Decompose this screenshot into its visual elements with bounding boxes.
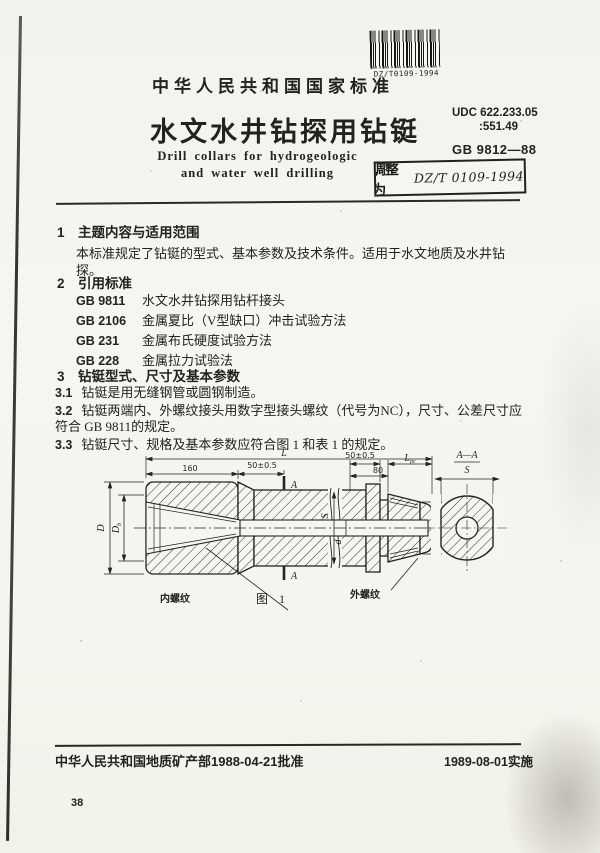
clause-number: 3.2 [55,404,72,418]
external-thread-leader [391,558,418,590]
section-view-AA: A—A S [425,450,509,572]
list-item: GB 231金属布氏硬度试验方法 [76,331,346,351]
approval-statement: 中华人民共和国地质矿产部1988-04-21批准 [55,751,304,770]
clause-text: 钻铤是用无缝钢管或圆钢制造。 [81,385,263,400]
scan-smudge [505,715,600,853]
standard-code: GB 9812—88 [452,142,537,157]
clause-text: 钻铤两端内、外螺纹接头用数字型接头螺纹（代号为NC），尺寸、公差尺寸应符合 GB… [55,403,522,435]
section-letter: A [290,571,298,582]
revision-stamp: 调整为 DZ/T 0109-1994 [374,158,527,196]
footer-divider [55,743,521,747]
clause-number: 3.1 [55,386,72,400]
header-divider [56,199,520,205]
list-item: GB 2106金属夏比（V型缺口）冲击试验方法 [76,311,346,331]
clause-3-1: 3.1钻铤是用无缝钢管或圆钢制造。 [55,385,529,402]
document-title-cn: 水文水井钻探用钻铤 [150,110,410,149]
section-3-heading: 3 钻铤型式、尺寸及基本参数 [57,365,240,385]
section-dim-S: S [465,465,470,476]
section-2-heading: 2 引用标准 [57,272,132,292]
external-thread-label: 外螺纹 [349,588,381,601]
figure-1-drawing: A A L 160 50±0.5 50±0.5 80 Lpc D Db [88,446,578,621]
referenced-standards-list: GB 9811水文水井钻探用钻杆接头 GB 2106金属夏比（V型缺口）冲击试验… [76,291,346,371]
udc-line2: :551.49 [452,120,538,134]
section-letter: A [290,480,298,491]
stamp-prefix: 调整为 [374,158,412,196]
document-title-en: Drill collars for hydrogeologic and wate… [125,148,390,182]
barcode-label: DZ/T0109-1994 [370,68,442,79]
ref-title: 金属布氏硬度试验方法 [142,333,272,348]
barcode-block: DZ/T0109-1994 [370,29,443,78]
ref-code: GB 2106 [76,312,142,331]
dim-label-80: 80 [373,466,383,475]
internal-thread-label: 内螺纹 [160,592,191,605]
implementation-date: 1989-08-01实施 [444,751,533,770]
scanned-standard-page: 中华人民共和国国家标准 水文水井钻探用钻铤 Drill collars for … [0,0,600,853]
dim-label-S: S [320,514,331,519]
stamp-number: DZ/T 0109-1994 [414,168,524,185]
dim-label-160: 160 [182,464,197,473]
figure-caption: 图 1 [256,592,289,606]
ref-code: GB 231 [76,332,142,351]
dim-label-Lpc: Lpc [403,453,416,465]
ref-code: GB 9811 [76,292,142,311]
ref-title: 水文水井钻探用钻杆接头 [142,293,285,308]
ref-title: 金属夏比（V型缺口）冲击试验方法 [142,313,346,328]
dim-label-Db: Db [111,523,123,534]
section-1-heading: 1 主题内容与适用范围 [57,221,200,241]
dim-label-D: D [96,524,107,533]
dim-label-50-right: 50±0.5 [345,451,375,460]
section-3-clauses: 3.1钻铤是用无缝钢管或圆钢制造。 3.2钻铤两端内、外螺纹接头用数字型接头螺纹… [55,385,529,454]
paper-speckles [0,0,2,2]
section-1-body: 本标准规定了钻铤的型式、基本参数及技术条件。适用于水文地质及水井钻探。 [76,245,526,279]
document-title-en-line2: and water well drilling [125,165,390,182]
clause-3-2: 3.2钻铤两端内、外螺纹接头用数字型接头螺纹（代号为NC），尺寸、公差尺寸应符合… [55,403,529,436]
national-standard-label: 中华人民共和国国家标准 [152,72,402,97]
binding-edge-line [6,16,22,841]
page-number: 38 [71,797,83,809]
udc-line1: UDC 622.233.05 [452,106,538,120]
document-title-en-line1: Drill collars for hydrogeologic [125,148,390,165]
udc-classification: UDC 622.233.05 :551.49 [452,106,538,134]
clause-number: 3.3 [55,438,72,452]
dim-label-L: L [280,448,287,459]
dim-label-50-left: 50±0.5 [247,461,277,470]
section-view-title: A—A [455,450,478,461]
list-item: GB 9811水文水井钻探用钻杆接头 [76,291,346,311]
barcode-image [370,29,441,68]
